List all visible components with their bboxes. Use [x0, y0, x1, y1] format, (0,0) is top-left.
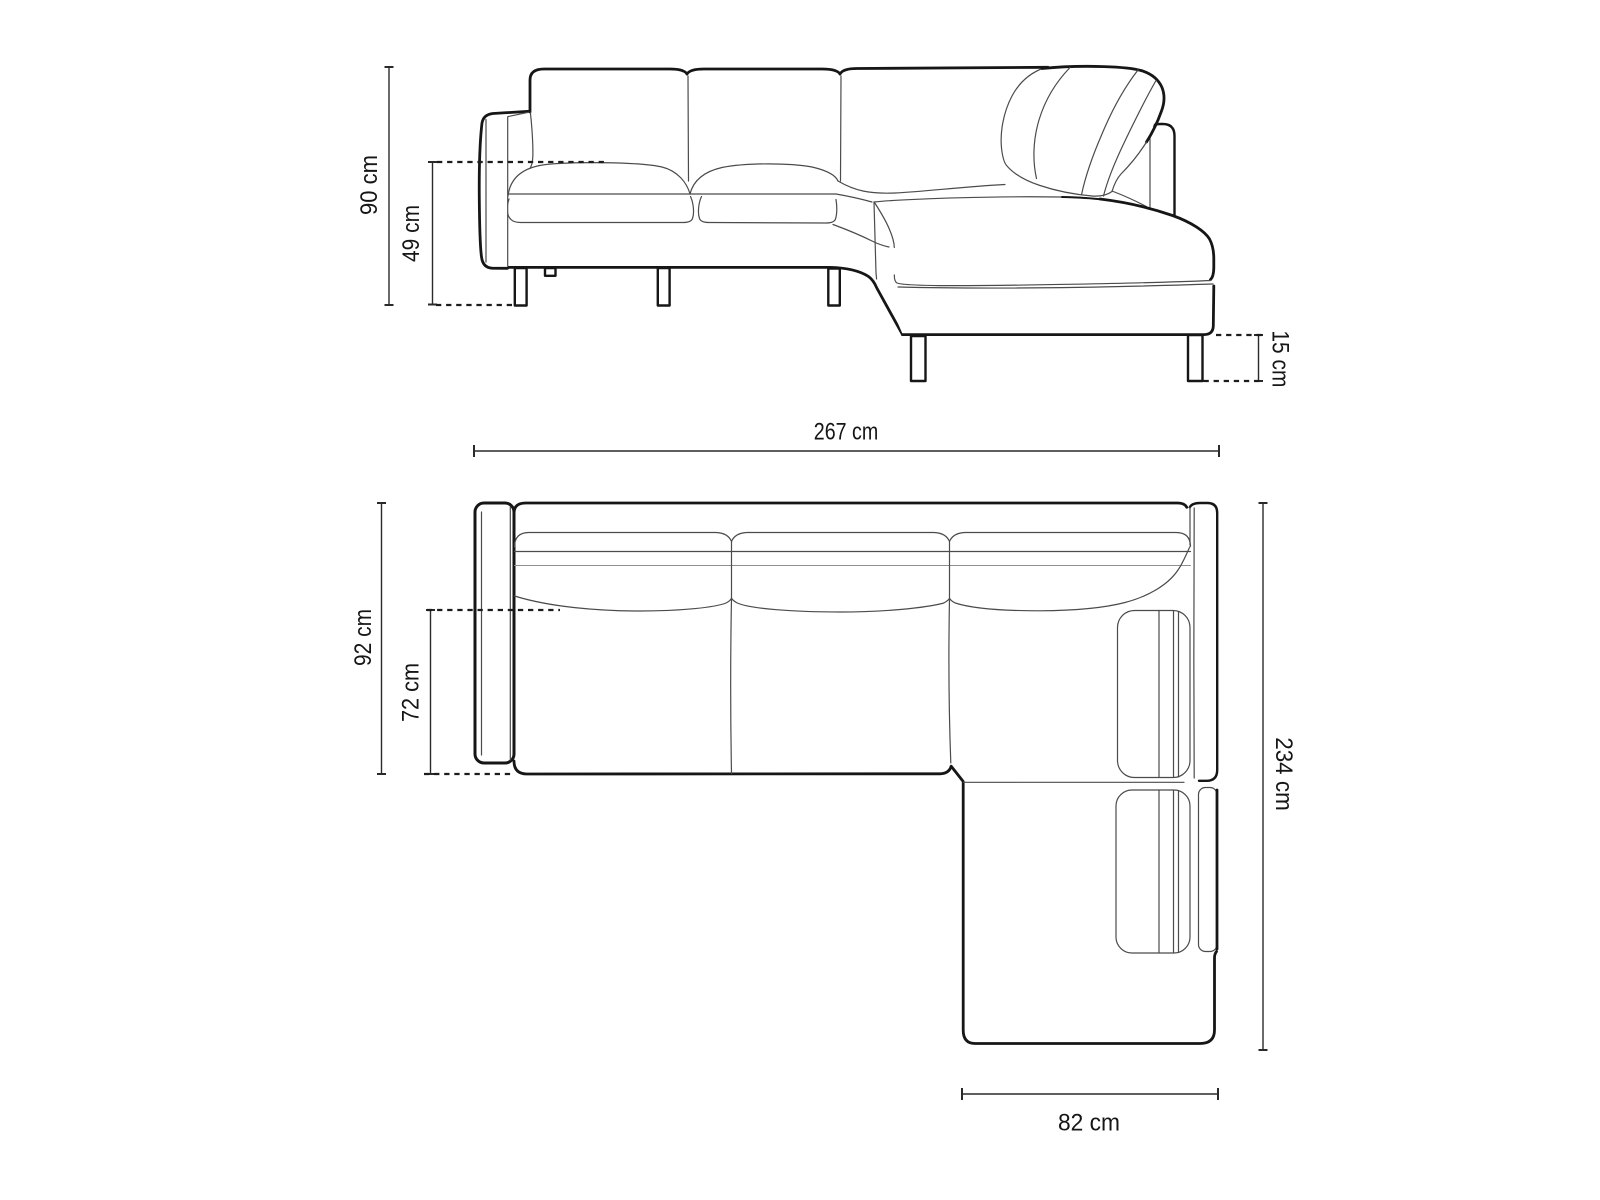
svg-text:49 cm: 49 cm — [398, 205, 425, 262]
svg-text:267 cm: 267 cm — [814, 419, 879, 446]
svg-text:82 cm: 82 cm — [1058, 1110, 1120, 1137]
svg-text:92 cm: 92 cm — [350, 609, 377, 666]
svg-text:72 cm: 72 cm — [398, 663, 425, 722]
svg-text:90 cm: 90 cm — [356, 155, 383, 215]
svg-text:234 cm: 234 cm — [1270, 737, 1297, 811]
svg-text:15 cm: 15 cm — [1267, 330, 1294, 387]
